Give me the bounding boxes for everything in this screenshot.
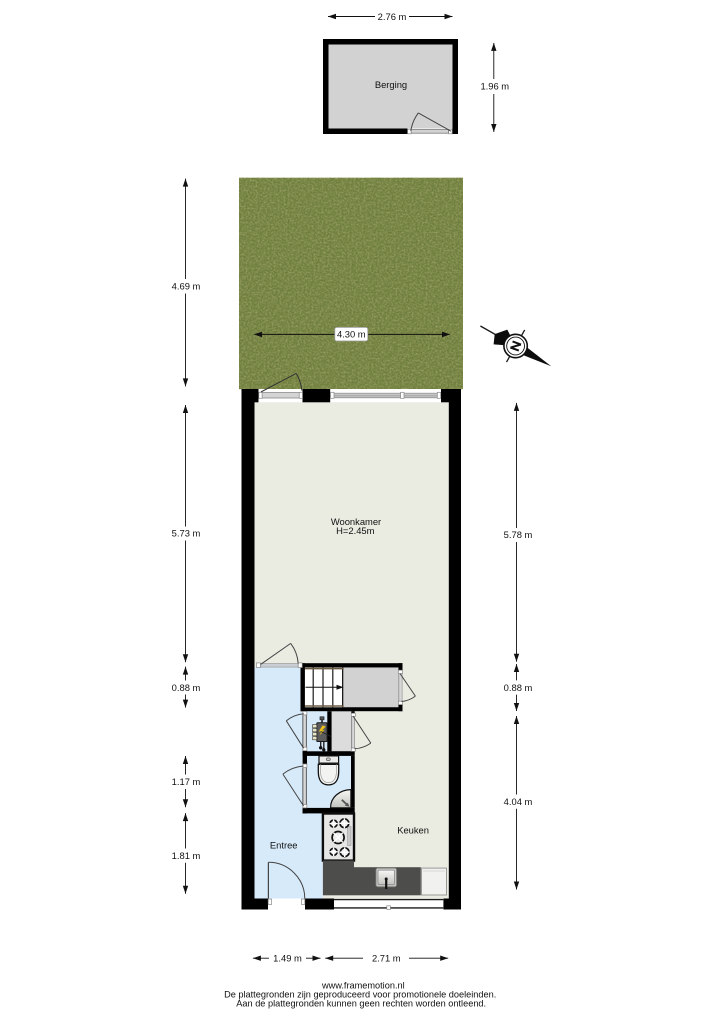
svg-text:0.88 m: 0.88 m [504, 682, 533, 693]
svg-text:1.17 m: 1.17 m [172, 776, 201, 787]
svg-text:4.04 m: 4.04 m [504, 796, 533, 807]
svg-text:2.71 m: 2.71 m [372, 952, 401, 963]
svg-text:5.73 m: 5.73 m [172, 528, 201, 539]
svg-text:H=2.45m: H=2.45m [336, 525, 374, 536]
svg-text:1.49 m: 1.49 m [273, 952, 302, 963]
svg-text:1.81 m: 1.81 m [172, 850, 201, 861]
svg-text:4.69 m: 4.69 m [172, 280, 201, 291]
svg-text:1.96 m: 1.96 m [480, 81, 509, 92]
svg-text:4.30 m: 4.30 m [337, 329, 366, 340]
svg-text:Keuken: Keuken [397, 824, 429, 835]
svg-text:Aan de plattegronden kunnen ge: Aan de plattegronden kunnen geen rechten… [236, 998, 486, 1008]
svg-text:5.78 m: 5.78 m [504, 529, 533, 540]
svg-text:2.76 m: 2.76 m [378, 11, 407, 22]
svg-text:Entree: Entree [270, 840, 298, 851]
svg-text:Berging: Berging [375, 79, 407, 90]
svg-text:0.88 m: 0.88 m [172, 682, 201, 693]
